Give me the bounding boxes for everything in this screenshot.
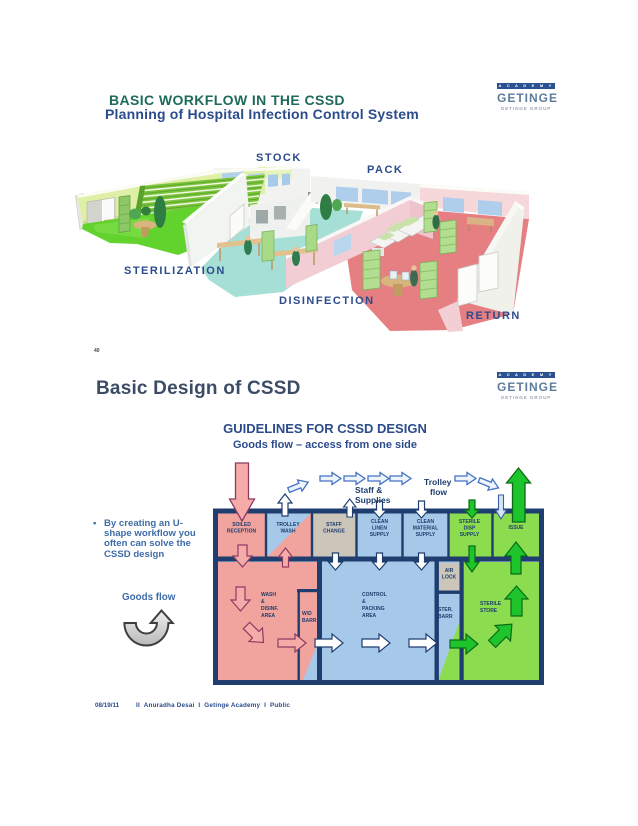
svg-text:WASH: WASH [261, 592, 276, 598]
svg-text:SOILED: SOILED [232, 522, 251, 528]
svg-text:CLEAN: CLEAN [371, 519, 389, 525]
svg-text:BARR: BARR [302, 618, 317, 624]
svg-text:DISINF.: DISINF. [261, 606, 279, 612]
svg-text:flow: flow [430, 487, 447, 497]
svg-text:TROLLEY: TROLLEY [276, 522, 300, 528]
svg-text:Supplies: Supplies [355, 495, 391, 505]
svg-text:STERILE: STERILE [459, 519, 481, 525]
svg-text:BARR: BARR [438, 614, 453, 620]
svg-text:STAFF: STAFF [326, 522, 342, 528]
svg-text:DISP: DISP [464, 526, 476, 532]
svg-text:AREA: AREA [261, 613, 276, 619]
svg-text:STERILE: STERILE [480, 601, 502, 607]
svg-text:W/D: W/D [302, 611, 312, 617]
svg-text:Trolley: Trolley [424, 477, 452, 487]
svg-text:SUPPLY: SUPPLY [416, 532, 436, 538]
svg-text:CONTROL: CONTROL [362, 592, 387, 598]
svg-text:CHANGE: CHANGE [323, 529, 345, 535]
svg-text:PACKING: PACKING [362, 606, 385, 612]
svg-text:Staff &: Staff & [355, 485, 382, 495]
svg-text:STORE: STORE [480, 608, 498, 614]
svg-text:RECEPTION: RECEPTION [227, 529, 257, 535]
svg-text:LOCK: LOCK [442, 575, 457, 581]
svg-text:SUPPLY: SUPPLY [370, 532, 390, 538]
svg-text:CLEAN: CLEAN [417, 519, 435, 525]
svg-text:STER.: STER. [438, 607, 453, 613]
svg-text:SUPPLY: SUPPLY [460, 532, 480, 538]
svg-text:&: & [362, 599, 366, 605]
svg-text:MATERIAL: MATERIAL [413, 526, 438, 532]
svg-text:AREA: AREA [362, 613, 377, 619]
svg-text:AIR: AIR [445, 568, 454, 574]
svg-text:ISSUE: ISSUE [508, 525, 524, 531]
svg-text:LINEN: LINEN [372, 526, 387, 532]
svg-text:WASH: WASH [281, 529, 296, 535]
svg-text:&: & [261, 599, 265, 605]
